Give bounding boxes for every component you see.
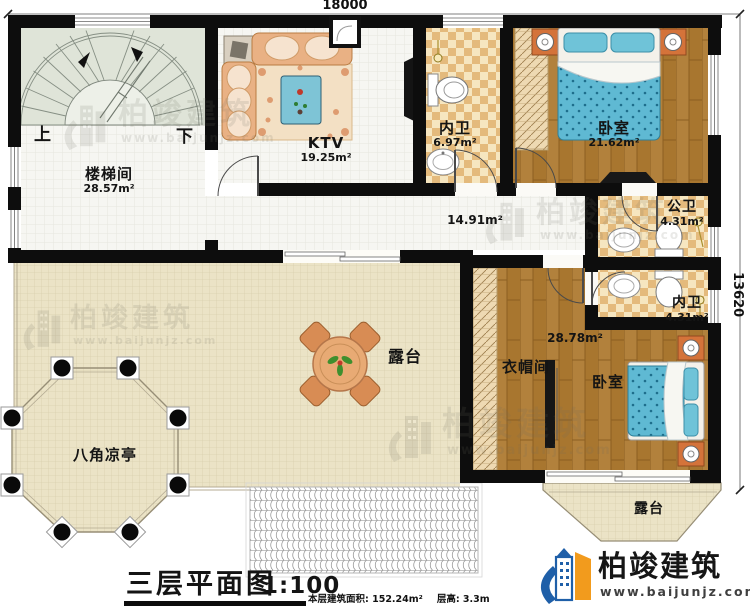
bed-double <box>628 362 704 440</box>
bedroom2-area-label: 28.78m² <box>530 332 620 345</box>
dimension-right: 13620 <box>729 272 744 317</box>
room-label-bath-mid: 内卫 4.31m² <box>652 296 722 324</box>
room-label-ktv: KTV 19.25m² <box>266 135 386 164</box>
dimension-top: 18000 <box>305 0 385 14</box>
watermark-text: 柏竣建筑 <box>118 98 254 132</box>
watermark-url: www.baijunjz.com <box>121 132 276 145</box>
sink <box>608 274 640 298</box>
duct-shaft <box>331 18 359 46</box>
watermark-url: www.baijunjz.com <box>540 229 695 242</box>
toilet-tank <box>655 249 683 257</box>
toilet-bowl <box>436 77 468 103</box>
terrace-small-label: 露台 <box>624 502 674 518</box>
watermark-text: 柏竣建筑 <box>442 406 590 443</box>
room-label-bedroom1: 卧室 21.62m² <box>554 120 674 149</box>
brand-url: www.baijunjz.com <box>600 585 750 599</box>
pavilion-label: 八角凉亭 <box>50 447 160 464</box>
drawing-title: 三层平面图 <box>126 570 276 600</box>
watermark-url: www.baijunjz.com <box>447 444 612 459</box>
ktv-tv <box>404 57 414 121</box>
brand-logo-icon <box>541 548 591 604</box>
lower-roof-hatch <box>250 487 478 573</box>
watermark-url: www.baijunjz.com <box>73 335 217 347</box>
room-label-stairwell: 楼梯间 28.57m² <box>49 166 169 195</box>
stair-up-label: 上 <box>34 126 51 145</box>
room-label-bath-top: 内卫 6.97m² <box>410 120 500 149</box>
area-note: 本层建筑面积: 152.24m²层高: 3.3m <box>308 595 504 606</box>
coffee-table <box>281 76 321 124</box>
terrace-main-label: 露台 <box>375 348 435 366</box>
title-underline <box>124 601 306 606</box>
cloakroom-label: 衣帽间 <box>496 359 556 376</box>
brand-name: 柏竣建筑 <box>598 550 722 582</box>
bedroom2-name-label: 卧室 <box>578 374 638 391</box>
watermark-text: 柏竣建筑 <box>536 196 668 228</box>
watermark-text: 柏竣建筑 <box>70 304 194 334</box>
corridor-area-label: 14.91m² <box>430 214 520 227</box>
floor-plan-page: 18000 13620 楼梯间 28.57m² 上 下 KTV 19.25m² … <box>0 0 750 616</box>
